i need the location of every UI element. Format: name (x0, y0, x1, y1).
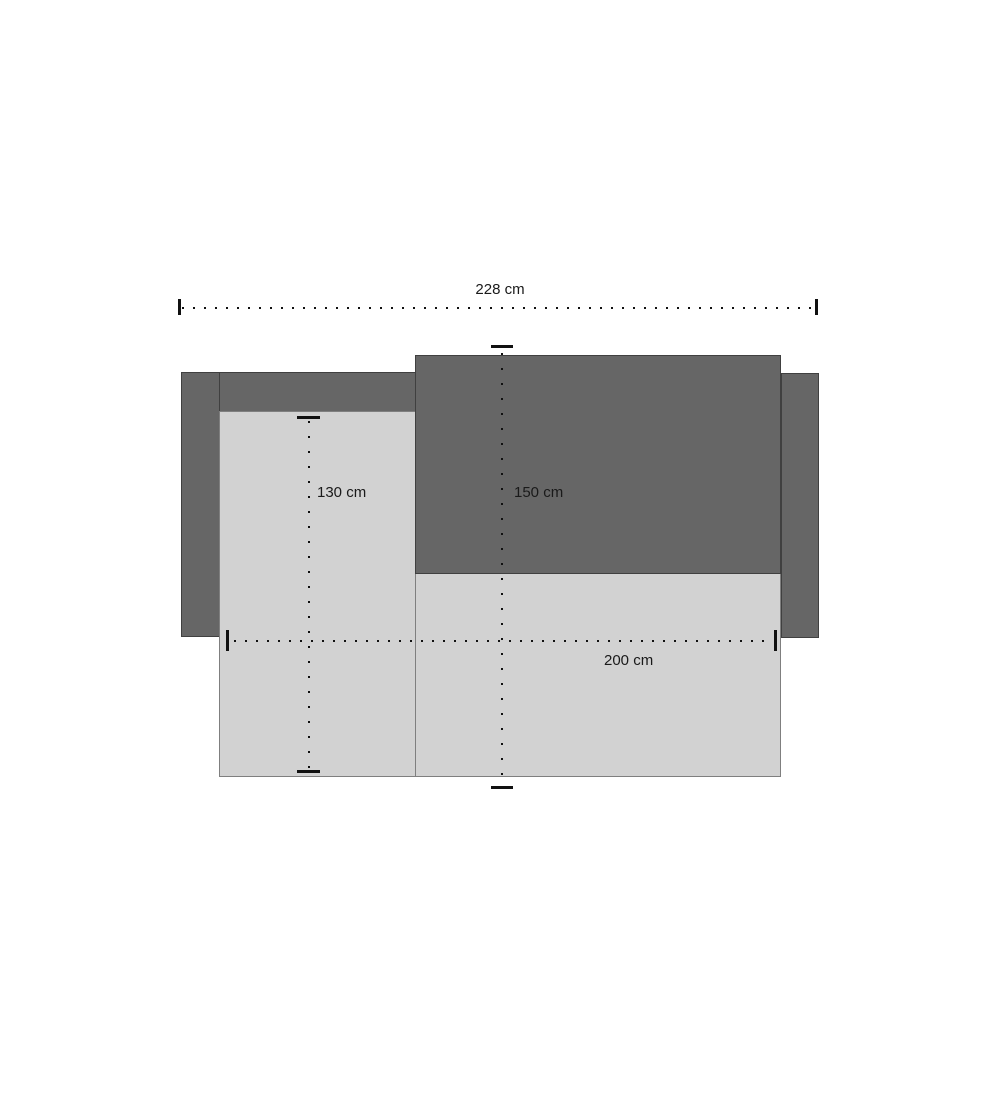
right-seat-shape (415, 573, 781, 777)
left-seat-shape (219, 411, 416, 777)
left-depth-top-tick (297, 416, 320, 419)
seat-width-left-tick (226, 630, 229, 651)
total-width-dotted-line (182, 307, 815, 309)
total-width-label: 228 cm (0, 281, 1000, 298)
backrest-shape (219, 372, 417, 412)
seat-width-right-tick (774, 630, 777, 651)
right-depth-label: 150 cm (514, 484, 563, 501)
right-depth-top-tick (491, 345, 513, 348)
right-depth-bottom-tick (491, 786, 513, 789)
seat-width-dotted-line (234, 640, 770, 642)
right-armrest-shape (781, 373, 819, 638)
total-width-left-tick (178, 299, 181, 315)
left-depth-bottom-tick (297, 770, 320, 773)
right-depth-dotted-line (501, 353, 503, 785)
total-width-right-tick (815, 299, 818, 315)
left-depth-dotted-line (308, 421, 310, 771)
left-depth-label: 130 cm (317, 484, 366, 501)
left-armrest-shape (181, 372, 220, 637)
chaise-section-shape (415, 355, 781, 574)
seat-width-label: 200 cm (604, 652, 653, 669)
sofa-dimension-diagram: 228 cm 130 cm 150 cm 200 cm (0, 0, 1000, 1100)
